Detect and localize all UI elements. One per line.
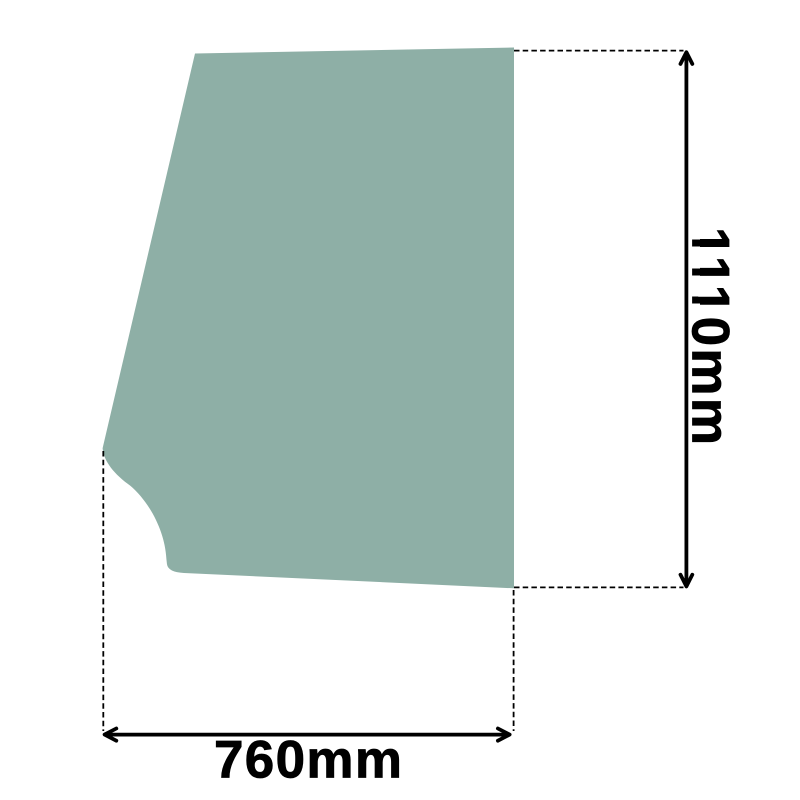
svg-text:760mm: 760mm <box>214 730 402 789</box>
svg-text:1110mm: 1110mm <box>681 227 740 445</box>
